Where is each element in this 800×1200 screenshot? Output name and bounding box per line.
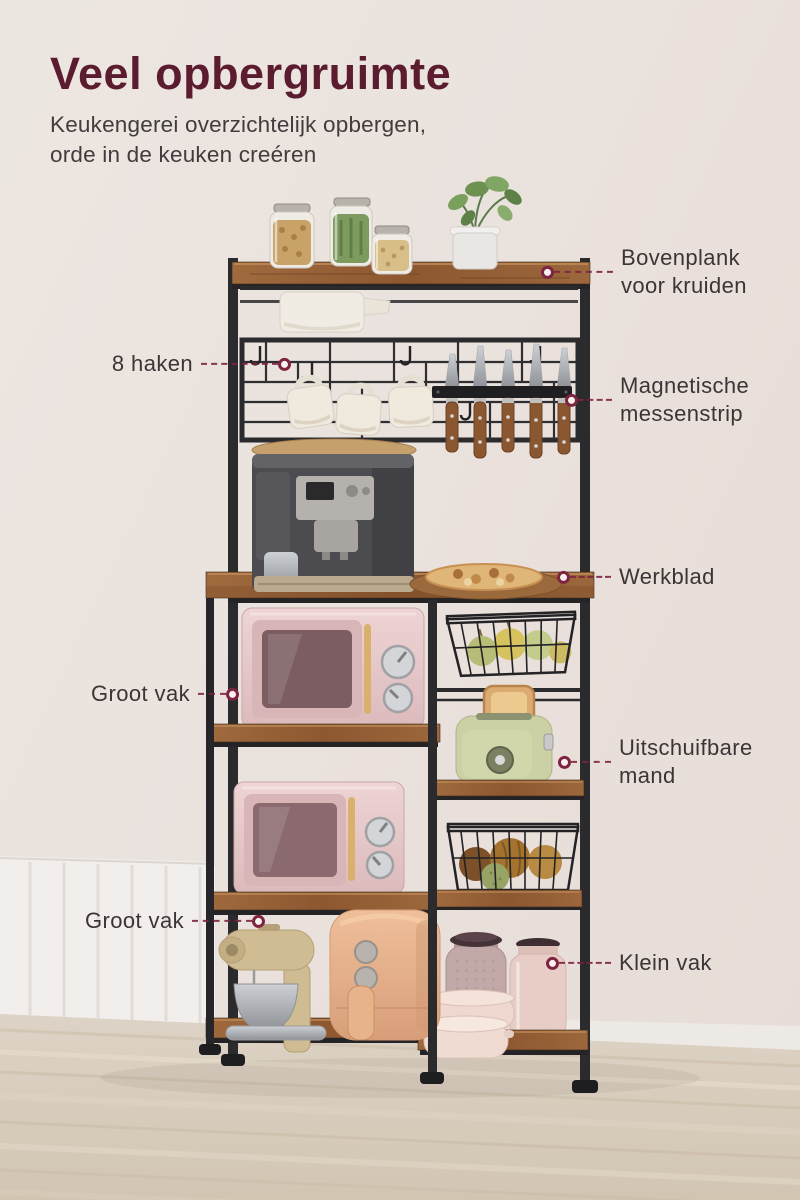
callout-ring [541,266,554,279]
page-subtitle: Keukengerei overzichtelijk opbergen, ord… [50,110,570,169]
spice-jars [270,198,412,274]
scene-illustration [0,0,800,1200]
page-title: Veel opbergruimte [50,50,570,97]
callout-line [198,693,226,695]
callout-klein-vak: Klein vak [546,949,712,977]
shelf-middle-left [208,724,440,747]
pink-microwave-bottom [234,782,404,894]
callout-label-groot-vak-boven: Groot vak [91,680,190,708]
callout-line [571,761,611,763]
callout-haken: 8 haken [112,350,291,378]
callout-line [201,363,278,365]
callout-line [570,576,611,578]
callout-groot-vak-boven: Groot vak [91,680,239,708]
callout-messenstrip: Magnetische messenstrip [565,372,749,428]
wire-fruit-basket-bottom [448,824,578,891]
callout-label-messenstrip: Magnetische messenstrip [620,372,749,428]
callout-line [192,920,252,922]
callout-label-mand: Uitschuifbare mand [619,734,753,790]
callout-bovenplank: Bovenplank voor kruiden [541,244,747,300]
pink-microwave-top [242,608,424,731]
callout-ring [565,394,578,407]
product-infographic: Veel opbergruimte Keukengerei overzichte… [0,0,800,1200]
callout-line [578,399,612,401]
callout-label-klein-vak: Klein vak [619,949,712,977]
callout-ring [252,915,265,928]
callout-ring [546,957,559,970]
paper-towel-roll [240,286,578,332]
callout-label-groot-vak-onder: Groot vak [85,907,184,935]
callout-label-bovenplank: Bovenplank voor kruiden [621,244,747,300]
callout-ring [226,688,239,701]
wainscot-panel [0,856,215,1024]
coffee-machine [252,439,416,592]
shelf-right-lower [434,890,582,910]
callout-ring [558,756,571,769]
stand-mixer [219,924,326,1052]
wire-fruit-basket-top [447,612,577,676]
callout-label-haken: 8 haken [112,350,193,378]
bread-board [410,564,562,599]
callout-uitschuifbare-mand: Uitschuifbare mand [558,734,753,790]
potted-plant [445,174,524,269]
knife-handles [446,398,570,458]
callout-ring [557,571,570,584]
mugs [285,375,434,436]
callout-label-werkblad: Werkblad [619,563,715,591]
callout-groot-vak-onder: Groot vak [85,907,265,935]
callout-line [559,962,611,964]
callout-ring [278,358,291,371]
callout-werkblad: Werkblad [557,563,715,591]
callout-line [554,271,613,273]
header: Veel opbergruimte Keukengerei overzichte… [50,50,570,170]
air-fryer [330,910,440,1040]
